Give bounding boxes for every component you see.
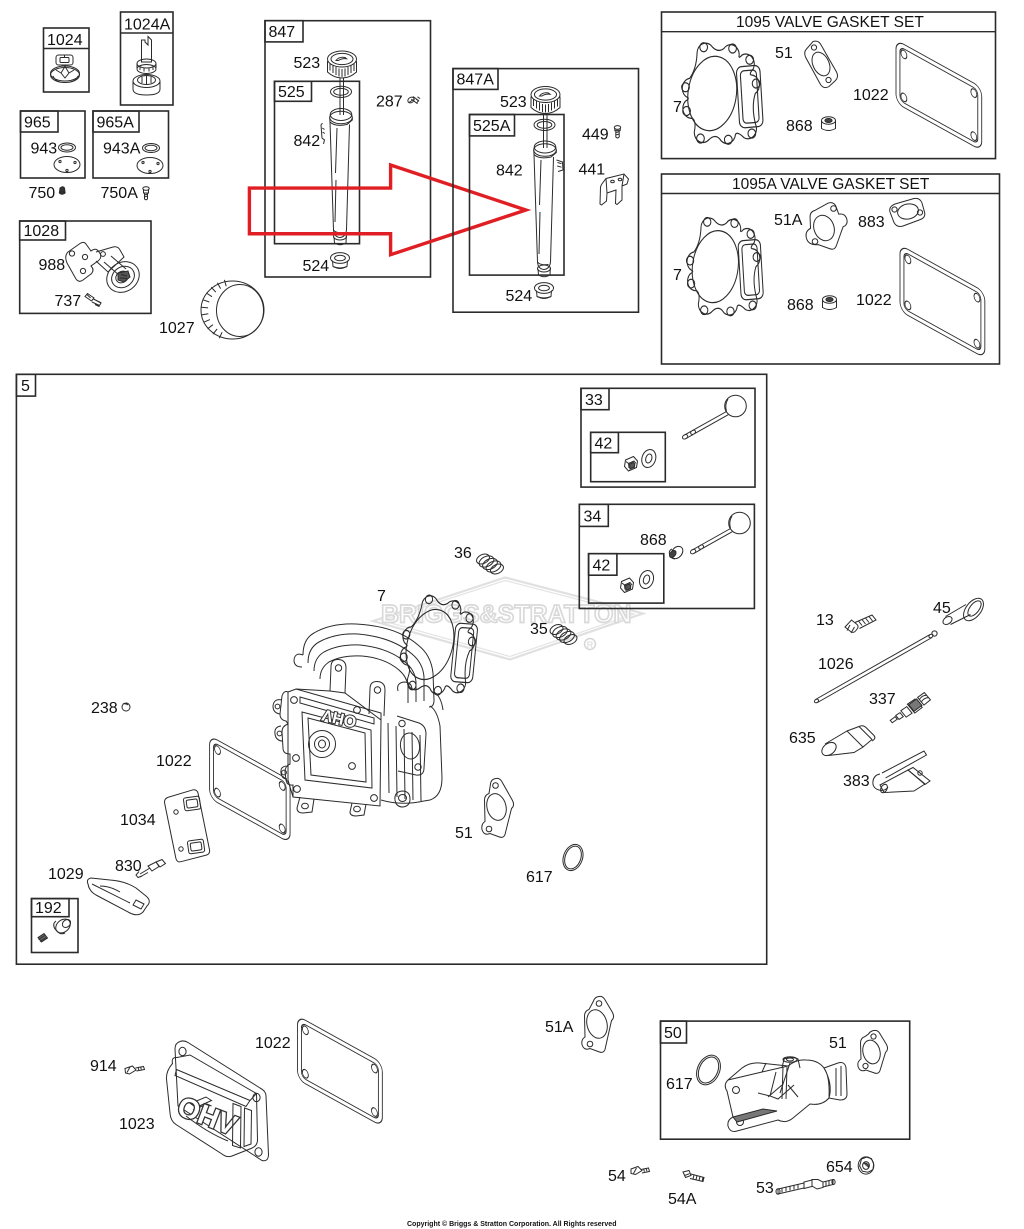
svg-text:1095A VALVE GASKET SET: 1095A VALVE GASKET SET: [732, 176, 930, 193]
svg-text:525: 525: [278, 84, 305, 101]
svg-text:7: 7: [673, 99, 682, 116]
svg-text:287: 287: [376, 94, 403, 111]
svg-text:617: 617: [526, 869, 553, 886]
svg-text:36: 36: [454, 545, 472, 562]
svg-text:50: 50: [664, 1025, 682, 1042]
svg-text:1028: 1028: [24, 223, 60, 240]
svg-text:449: 449: [582, 127, 609, 144]
svg-text:1022: 1022: [853, 87, 889, 104]
svg-text:337: 337: [869, 691, 896, 708]
svg-text:35: 35: [530, 621, 548, 638]
svg-text:750: 750: [29, 185, 56, 202]
svg-text:1023: 1023: [119, 1116, 155, 1133]
svg-text:842: 842: [496, 163, 523, 180]
svg-text:617: 617: [666, 1076, 693, 1093]
svg-text:383: 383: [843, 773, 870, 790]
svg-text:51A: 51A: [774, 212, 803, 229]
svg-text:868: 868: [640, 532, 667, 549]
svg-text:51: 51: [775, 45, 793, 62]
svg-text:1027: 1027: [159, 320, 195, 337]
svg-text:1022: 1022: [856, 292, 892, 309]
svg-text:943A: 943A: [103, 141, 141, 158]
svg-text:54: 54: [608, 1168, 626, 1185]
svg-text:943: 943: [31, 141, 58, 158]
svg-text:524: 524: [506, 288, 533, 305]
svg-text:51: 51: [455, 825, 473, 842]
svg-text:7: 7: [673, 267, 682, 284]
svg-text:525A: 525A: [473, 118, 511, 135]
svg-text:868: 868: [787, 297, 814, 314]
svg-text:965: 965: [24, 115, 51, 132]
svg-text:1022: 1022: [156, 753, 192, 770]
svg-text:1022: 1022: [255, 1035, 291, 1052]
svg-text:914: 914: [90, 1058, 117, 1075]
svg-text:883: 883: [858, 214, 885, 231]
svg-text:988: 988: [39, 257, 66, 274]
svg-text:654: 654: [826, 1159, 853, 1176]
svg-text:R: R: [587, 640, 594, 650]
svg-text:54A: 54A: [668, 1191, 697, 1208]
svg-text:5: 5: [21, 378, 30, 395]
svg-text:53: 53: [756, 1180, 774, 1197]
svg-text:441: 441: [579, 162, 606, 179]
svg-text:965A: 965A: [97, 115, 135, 132]
svg-text:523: 523: [294, 55, 321, 72]
svg-text:842: 842: [294, 133, 321, 150]
svg-text:42: 42: [595, 436, 613, 453]
svg-text:1026: 1026: [818, 656, 854, 673]
svg-text:523: 523: [500, 94, 527, 111]
svg-text:13: 13: [816, 612, 834, 629]
svg-text:1024: 1024: [47, 32, 83, 49]
svg-text:1029: 1029: [48, 866, 84, 883]
svg-text:737: 737: [55, 293, 82, 310]
svg-text:1095 VALVE GASKET SET: 1095 VALVE GASKET SET: [736, 14, 924, 31]
svg-text:1024A: 1024A: [124, 17, 171, 34]
svg-text:7: 7: [377, 588, 386, 605]
svg-text:524: 524: [303, 258, 330, 275]
svg-text:34: 34: [584, 509, 602, 526]
svg-text:33: 33: [585, 392, 603, 409]
svg-text:868: 868: [786, 118, 813, 135]
svg-text:238: 238: [91, 700, 118, 717]
svg-text:635: 635: [789, 730, 816, 747]
svg-text:42: 42: [593, 558, 611, 575]
svg-text:51: 51: [829, 1035, 847, 1052]
svg-text:750A: 750A: [101, 185, 139, 202]
svg-text:1034: 1034: [120, 812, 156, 829]
svg-text:192: 192: [35, 900, 62, 917]
svg-text:847: 847: [269, 24, 296, 41]
svg-text:51A: 51A: [545, 1019, 574, 1036]
svg-text:Copyright © Briggs & Stratton: Copyright © Briggs & Stratton Corporatio…: [407, 1220, 616, 1228]
svg-text:847A: 847A: [457, 72, 495, 89]
